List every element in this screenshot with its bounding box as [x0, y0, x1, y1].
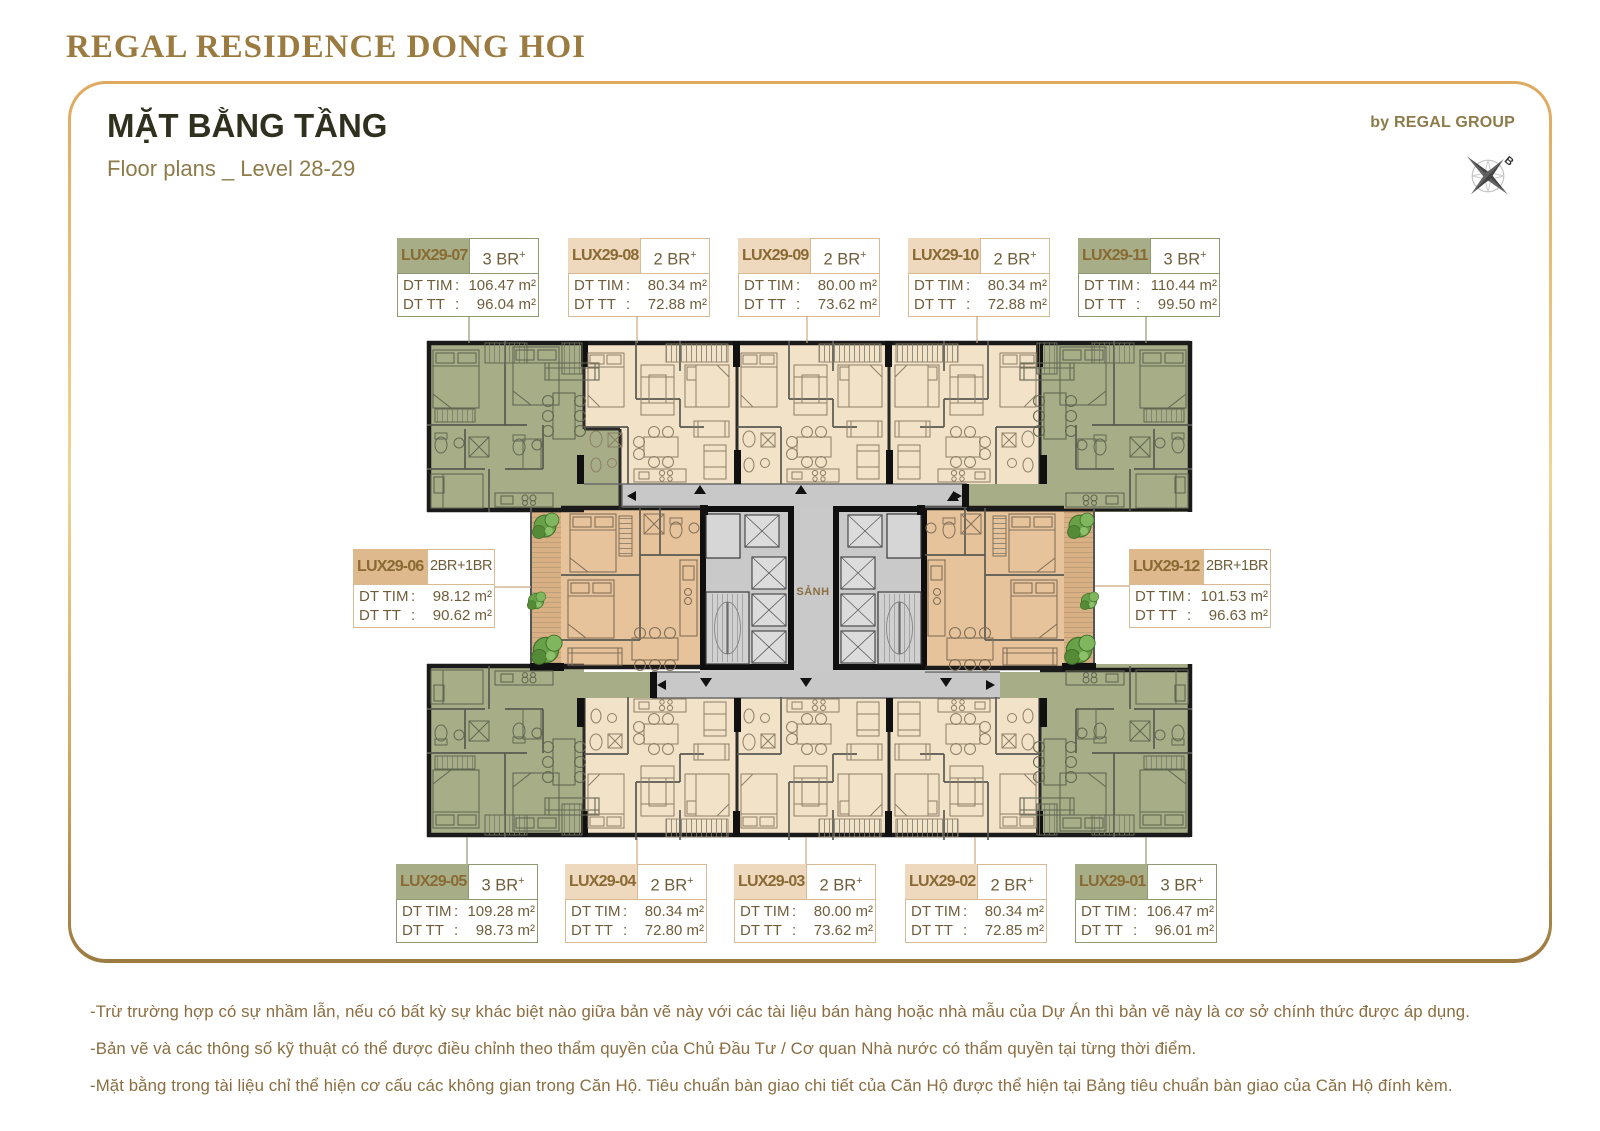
- svg-text:SẢNH: SẢNH: [796, 585, 829, 598]
- svg-text:B: B: [1502, 154, 1516, 168]
